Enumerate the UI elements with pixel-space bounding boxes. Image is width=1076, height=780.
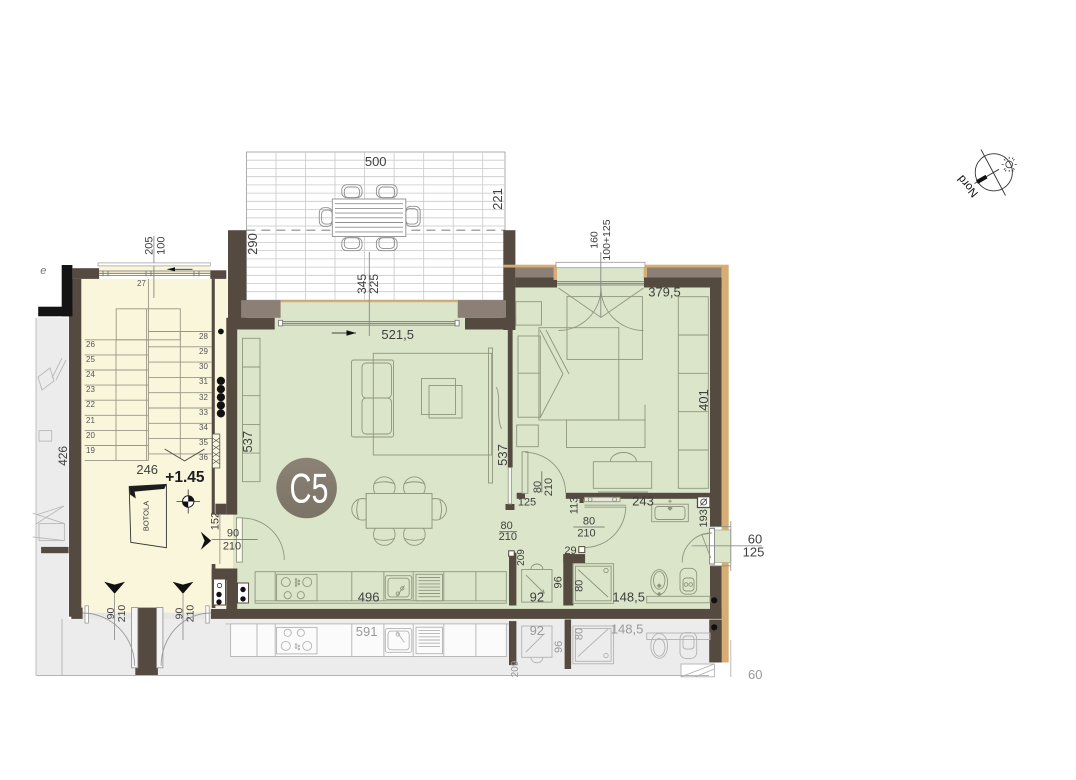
svg-text:209: 209 [516,549,527,566]
svg-text:e: e [40,265,46,277]
svg-text:210: 210 [543,478,555,496]
svg-text:33: 33 [199,408,208,417]
svg-text:26: 26 [86,340,95,349]
svg-text:210: 210 [223,541,241,553]
svg-text:Nord: Nord [956,172,981,199]
svg-text:290: 290 [245,233,260,255]
svg-text:23: 23 [86,385,95,394]
svg-text:30: 30 [199,362,208,371]
svg-text:148,5: 148,5 [611,622,644,637]
svg-text:537: 537 [240,431,255,453]
svg-text:80: 80 [583,516,595,528]
svg-text:+1.45: +1.45 [165,469,205,486]
svg-text:113: 113 [568,497,580,515]
svg-text:148,5: 148,5 [612,590,645,605]
svg-text:379,5: 379,5 [648,285,681,300]
svg-text:22: 22 [86,400,95,409]
svg-text:25: 25 [86,355,95,364]
svg-text:19: 19 [86,446,95,455]
svg-text:BOTOLA: BOTOLA [142,501,151,531]
svg-text:210: 210 [577,528,595,540]
svg-text:92: 92 [530,590,544,605]
svg-text:401: 401 [696,389,711,411]
svg-text:100: 100 [155,237,167,255]
svg-text:20: 20 [86,431,95,440]
svg-text:500: 500 [365,154,387,169]
svg-text:210: 210 [116,605,128,623]
svg-text:29: 29 [564,545,576,557]
svg-text:C5: C5 [290,465,329,512]
svg-text:96: 96 [553,641,565,653]
svg-text:246: 246 [136,462,158,477]
svg-text:537: 537 [495,444,510,466]
svg-text:36: 36 [199,453,208,462]
svg-text:125: 125 [743,545,765,560]
svg-text:243: 243 [632,494,654,509]
svg-text:96: 96 [553,576,565,588]
svg-text:32: 32 [199,393,208,402]
svg-text:591: 591 [356,624,378,639]
svg-text:210: 210 [499,531,517,543]
svg-text:160: 160 [589,231,601,249]
svg-text:210: 210 [184,605,196,623]
svg-text:221: 221 [490,188,505,210]
svg-text:28: 28 [199,332,208,341]
svg-text:496: 496 [358,590,380,605]
svg-text:193: 193 [698,509,710,527]
svg-text:90: 90 [227,528,239,540]
svg-text:34: 34 [199,423,208,432]
svg-text:426: 426 [56,446,70,466]
svg-text:225: 225 [367,274,381,294]
svg-text:92: 92 [530,623,544,638]
svg-text:521,5: 521,5 [381,327,414,342]
svg-text:29: 29 [199,347,208,356]
svg-text:60: 60 [748,667,762,682]
svg-text:80: 80 [574,580,586,592]
svg-text:80: 80 [574,628,586,640]
svg-text:100+125: 100+125 [601,219,613,260]
svg-text:27: 27 [137,279,146,288]
svg-text:35: 35 [199,438,208,447]
svg-text:125: 125 [518,497,536,509]
svg-text:21: 21 [86,416,95,425]
svg-text:24: 24 [86,370,95,379]
svg-text:152: 152 [209,512,221,530]
svg-text:31: 31 [199,377,208,386]
svg-text:205: 205 [143,237,155,255]
svg-text:209: 209 [510,660,521,677]
